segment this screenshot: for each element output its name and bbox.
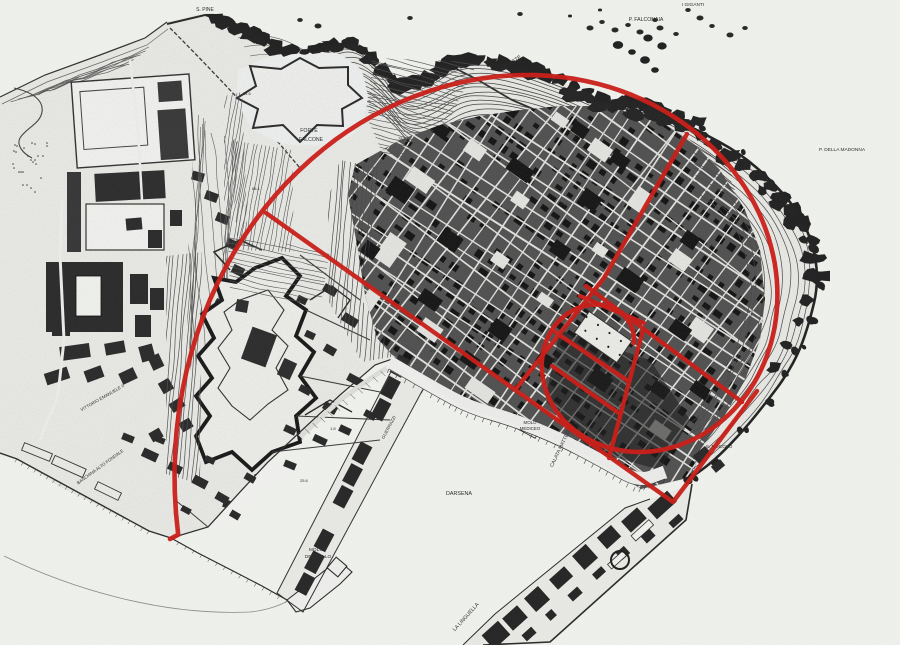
svg-text:MOLO: MOLO [309, 547, 323, 553]
svg-text:S. ROCOLO: S. ROCOLO [706, 444, 733, 450]
svg-text:4.5: 4.5 [520, 328, 526, 333]
svg-text:1.8: 1.8 [330, 426, 336, 431]
svg-text:25.6: 25.6 [300, 478, 309, 483]
svg-text:43.2: 43.2 [358, 248, 367, 253]
svg-text:FALCONE: FALCONE [299, 137, 324, 143]
svg-text:FORTE: FORTE [300, 128, 318, 134]
svg-text:54.6: 54.6 [243, 91, 252, 96]
svg-text:MOLO: MOLO [524, 420, 538, 425]
svg-text:I GIGANTI: I GIGANTI [682, 2, 704, 8]
svg-text:32.1: 32.1 [560, 201, 569, 206]
svg-text:MEDICEO: MEDICEO [520, 426, 541, 431]
svg-text:78.7: 78.7 [398, 136, 407, 141]
svg-text:45: 45 [620, 228, 625, 233]
svg-text:S. PINE: S. PINE [196, 7, 214, 13]
svg-text:P. FALCONAIA: P. FALCONAIA [629, 17, 664, 23]
svg-text:2.9: 2.9 [430, 348, 436, 353]
svg-text:DARSENA: DARSENA [446, 491, 472, 497]
svg-text:P. DELLA MADONNA: P. DELLA MADONNA [819, 147, 866, 153]
svg-text:DEL GALLO: DEL GALLO [305, 554, 332, 560]
svg-text:66.1: 66.1 [252, 186, 261, 191]
svg-text:3.3: 3.3 [505, 376, 511, 381]
svg-text:48.2: 48.2 [215, 298, 224, 303]
svg-text:4.3: 4.3 [468, 298, 474, 303]
